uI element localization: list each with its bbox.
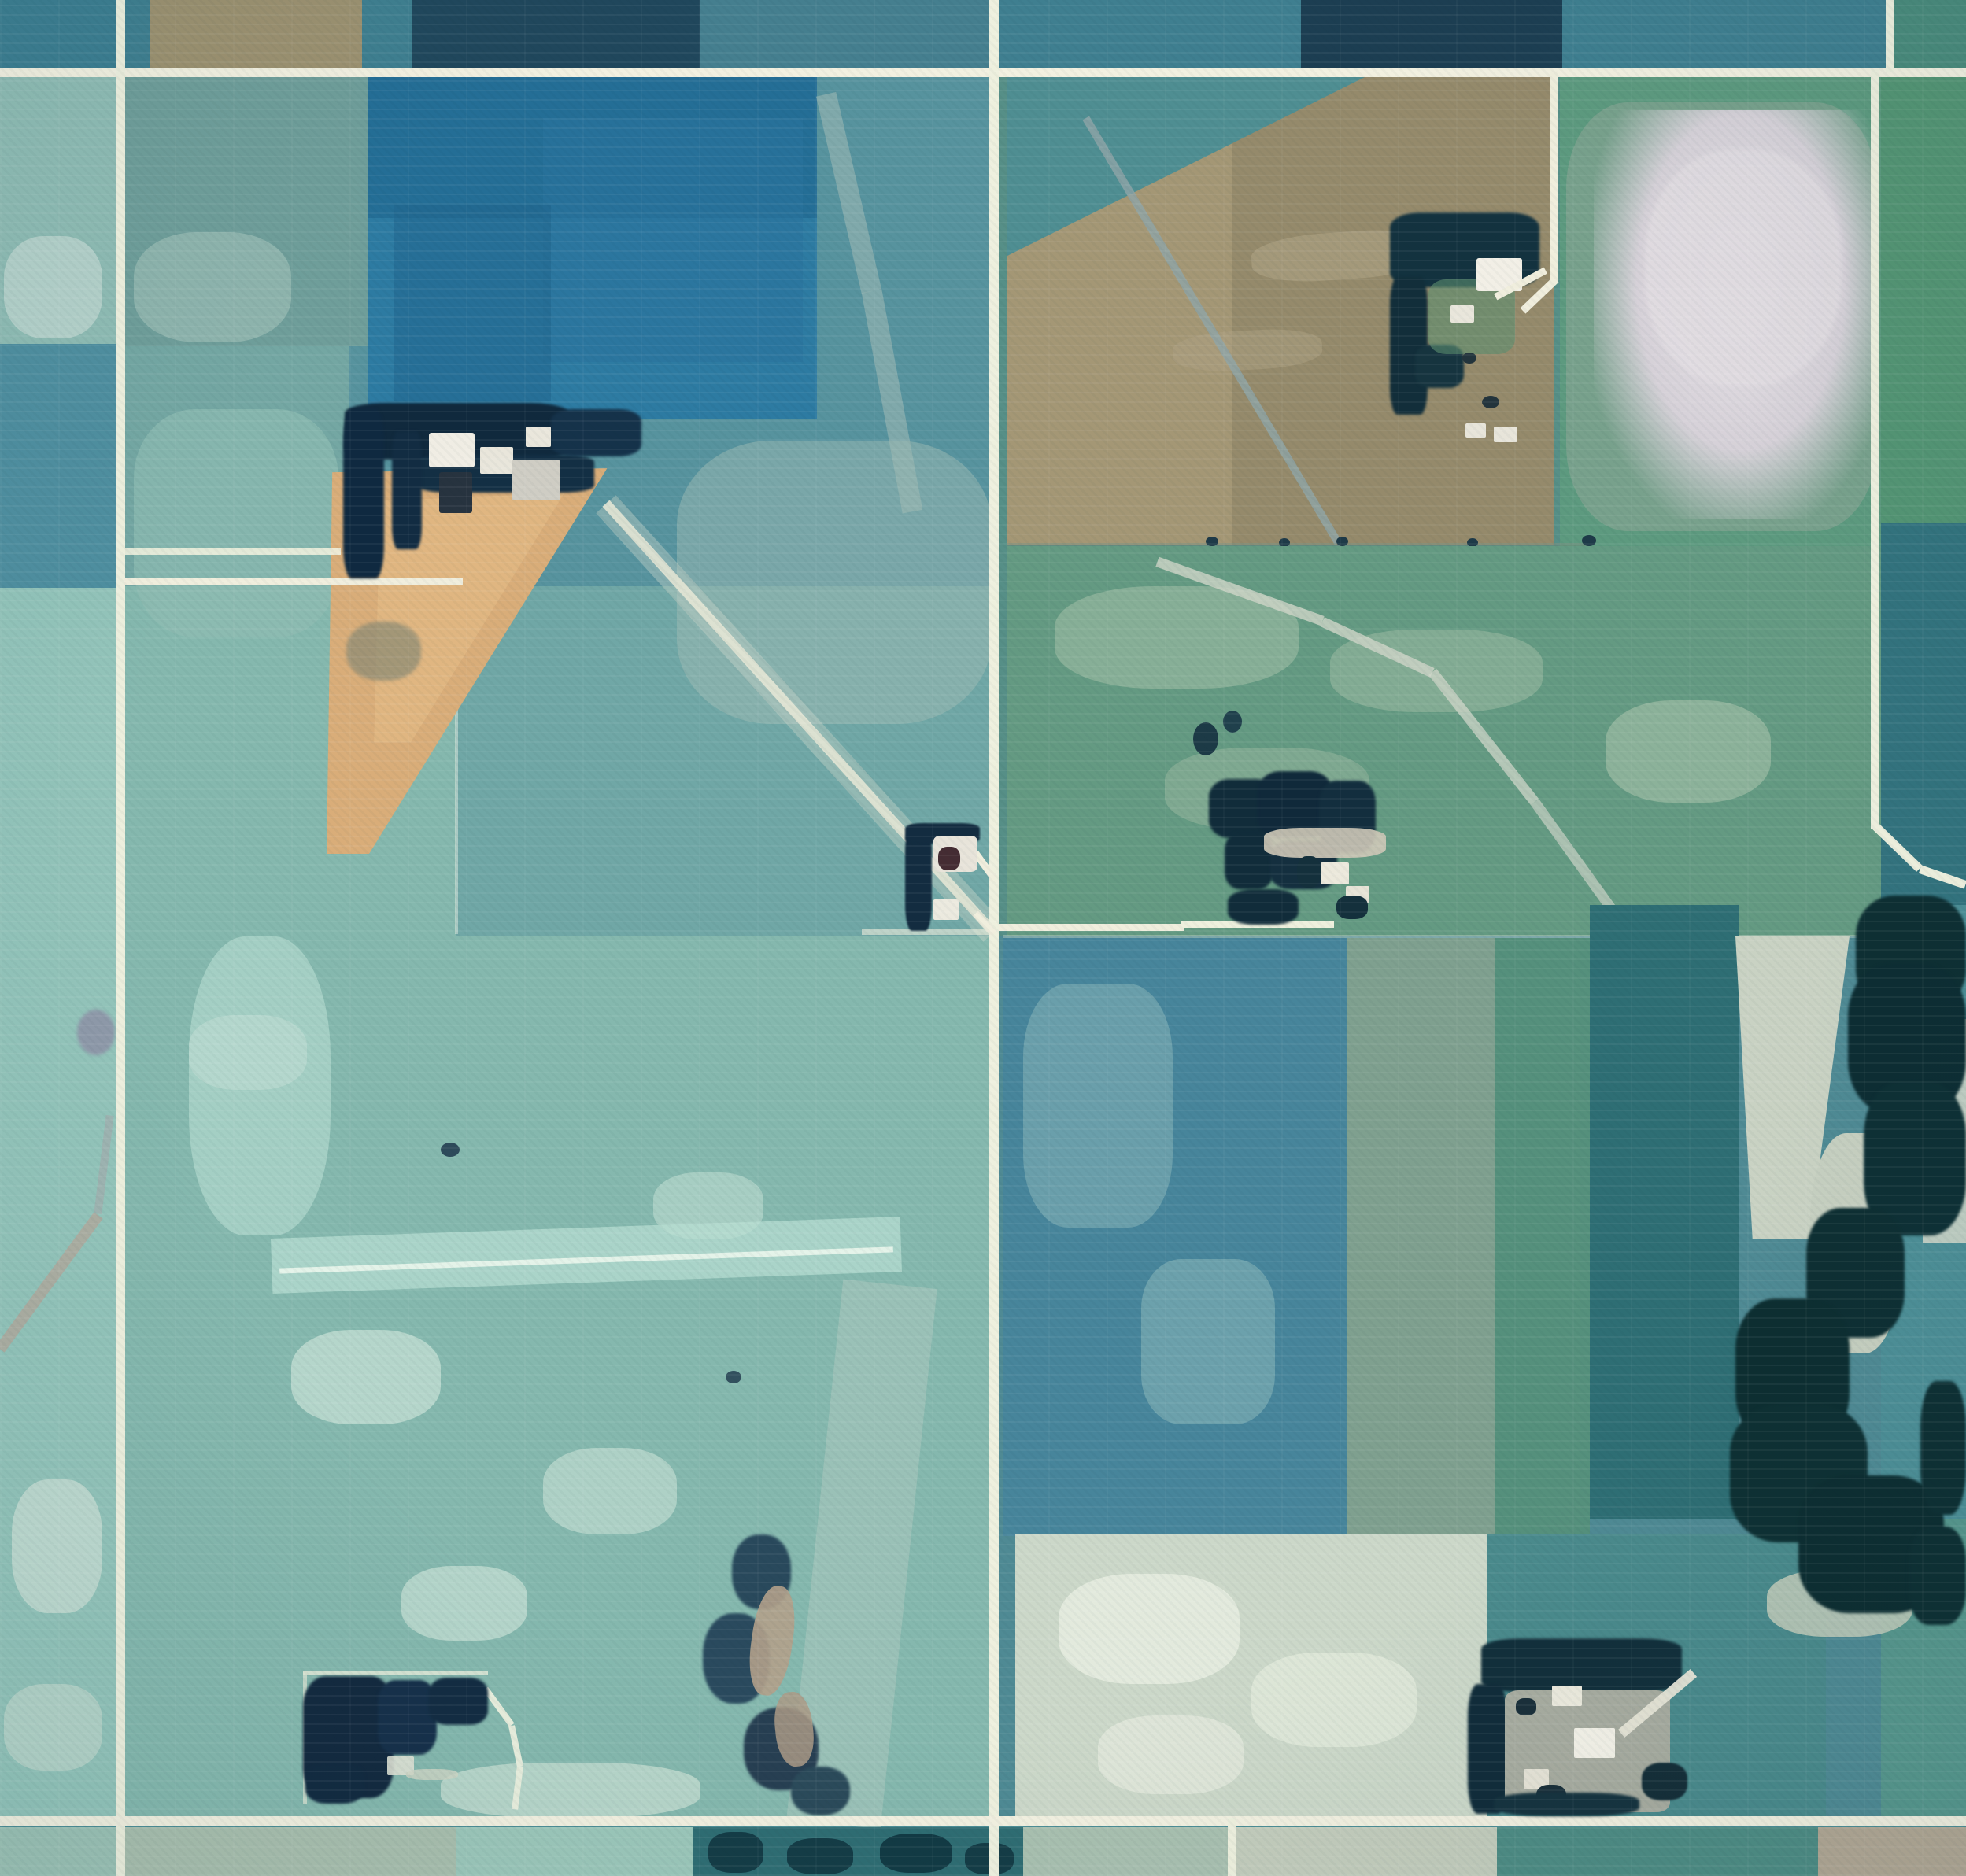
bf-trees-bottom <box>1494 1793 1639 1816</box>
farmyard-smudge <box>346 622 421 681</box>
bf-building-1 <box>1552 1686 1582 1706</box>
bf-dark-3 <box>1642 1763 1687 1800</box>
creek-brush-4 <box>791 1767 850 1815</box>
tree-dot-row-3 <box>1336 537 1348 546</box>
tl-building-small <box>526 427 551 447</box>
mid-farm-dark-2 <box>1336 896 1368 919</box>
road-farm-drive-tl <box>124 548 341 555</box>
terrain-speck-2 <box>726 1371 741 1383</box>
tl-building-shed1 <box>480 447 513 474</box>
bl-trees-2 <box>378 1680 437 1755</box>
tr-dark-dot-2 <box>1482 396 1499 408</box>
center-home-dark <box>938 847 960 870</box>
field-top-dark-right <box>1301 0 1562 71</box>
river-trees-9 <box>1909 1527 1966 1625</box>
patch-lower-white-1 <box>291 1330 441 1424</box>
field-top-dark-left <box>412 0 700 71</box>
road-left <box>116 0 125 1876</box>
tl-building-shed2 <box>512 460 560 500</box>
field-band-graygreen <box>1347 938 1495 1540</box>
bl-trees-3 <box>429 1678 488 1725</box>
patch-band-blue-pale1 <box>1023 984 1173 1228</box>
field-left-strip-mid <box>0 344 118 588</box>
field-bottom-3 <box>1023 1827 1229 1876</box>
road-farm-spur-west <box>124 578 463 585</box>
field-top-strip <box>118 0 1966 71</box>
patch-above-road-white <box>441 1763 700 1818</box>
tr-white-bit-1 <box>1465 423 1486 438</box>
tr-white-bit-2 <box>1494 427 1517 442</box>
patch-green-pale-3 <box>1606 700 1771 803</box>
field-pale-bottom-left <box>1015 1534 1487 1819</box>
bf-trees-left <box>1468 1684 1507 1814</box>
patch-pale-white-2 <box>1251 1653 1417 1747</box>
patch-lower-white-4 <box>401 1566 527 1641</box>
tree-pair-dark-1 <box>1193 722 1218 755</box>
tr-dark-dot-1 <box>1462 353 1476 364</box>
bottom-dark-tree-2 <box>787 1838 853 1874</box>
road-stub-top-right <box>1886 0 1894 72</box>
bottom-dark-tree-1 <box>708 1832 763 1873</box>
patch-left-block-pale-east <box>677 441 992 724</box>
field-band-darkteal <box>1590 905 1739 1519</box>
bl-trees-4 <box>305 1763 364 1804</box>
bottom-dark-tree-3 <box>880 1834 952 1873</box>
bf-dark-1 <box>1516 1698 1536 1715</box>
field-left-strip-top <box>0 0 118 72</box>
tl-farm-trees-inner <box>392 431 422 549</box>
bf-trees-top <box>1481 1638 1682 1692</box>
road-center <box>989 0 999 1876</box>
road-bottom <box>0 1816 1966 1826</box>
tree-dot-row-1 <box>1206 537 1218 546</box>
road-right <box>1871 69 1879 829</box>
field-bottom-2 <box>456 1827 693 1876</box>
patch-lower-white-2 <box>543 1448 677 1534</box>
terrain-purple-blotch <box>77 1010 115 1055</box>
patch-dark-blue-deep <box>394 205 551 401</box>
bl-drive-pale <box>406 1769 458 1780</box>
center-home-building <box>933 899 959 920</box>
tl-building-dark <box>439 472 472 513</box>
patch-left-strip-upper-white <box>4 236 102 338</box>
field-bottom-4 <box>1236 1827 1497 1876</box>
patch-left-strip-white-2 <box>4 1684 102 1771</box>
field-bottom-1 <box>124 1827 456 1876</box>
tr-building-small <box>1450 305 1474 323</box>
terrain-speck-1 <box>441 1143 460 1157</box>
patch-mid-left-pale <box>134 409 338 637</box>
patch-lower-white-3 <box>189 1015 307 1090</box>
road-mid-east-spur <box>999 924 1184 931</box>
tl-farm-trees-right <box>551 409 641 456</box>
bf-building-big <box>1574 1728 1615 1758</box>
field-top-teal-mid <box>700 0 992 71</box>
patch-pale-white-3 <box>1098 1715 1244 1794</box>
patch-band-blue-pale2 <box>1141 1259 1275 1424</box>
field-left-strip-bottom <box>0 1827 118 1876</box>
field-top-right-green <box>1893 0 1966 71</box>
mid-farm-yard <box>1264 828 1386 858</box>
river-trees-8 <box>1920 1381 1966 1515</box>
field-band-green <box>1495 938 1590 1540</box>
field-bottom-6 <box>1818 1827 1966 1876</box>
boundary-bl-cluster-top <box>303 1671 488 1675</box>
field-bottom-5 <box>1497 1827 1818 1876</box>
pond-dry-core <box>1645 150 1842 386</box>
road-tr-vertical <box>1550 71 1558 282</box>
patch-pale-white-1 <box>1059 1574 1240 1684</box>
mid-building-1 <box>1321 862 1349 884</box>
aerial-photograph <box>0 0 1966 1876</box>
field-top-tan <box>150 0 362 71</box>
tree-dot-row-5 <box>1582 535 1596 546</box>
mid-farm-trees-6 <box>1228 889 1299 925</box>
tl-building-house <box>429 433 475 467</box>
tree-pair-dark-2 <box>1223 711 1242 733</box>
patch-dark-blue-inner <box>543 118 803 362</box>
road-bottom-stub <box>1228 1818 1236 1876</box>
patch-subfield-nw-pale <box>134 232 291 342</box>
road-top <box>0 68 1966 77</box>
tl-farm-trees-left <box>343 409 384 578</box>
field-right-edge-upper <box>1881 71 1966 523</box>
mid-farm-dark-1 <box>1297 856 1321 888</box>
patch-left-strip-white-1 <box>12 1479 102 1613</box>
